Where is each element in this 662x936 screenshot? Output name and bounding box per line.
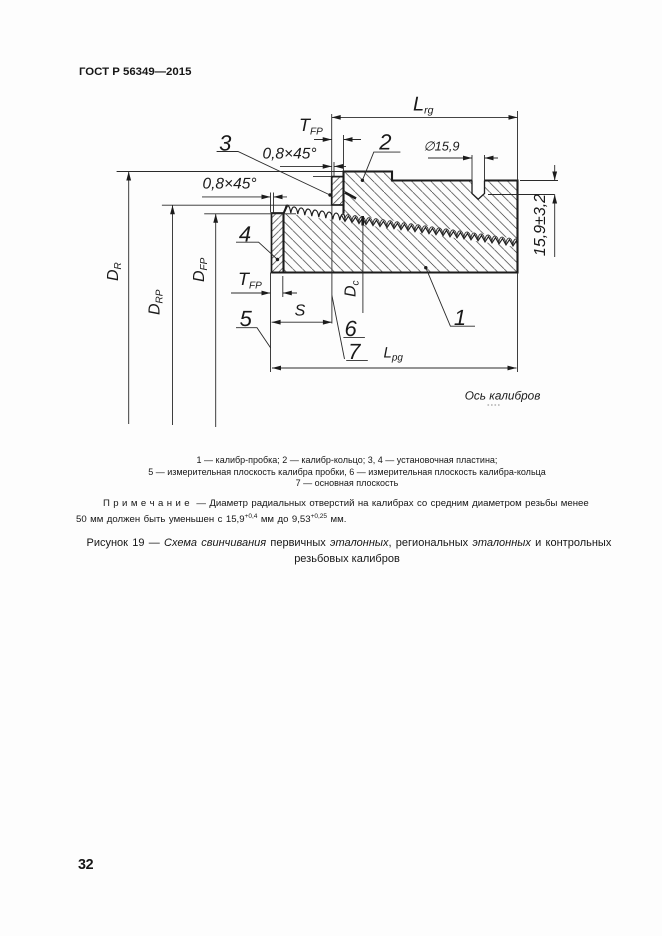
svg-text:Lrg: Lrg	[413, 94, 434, 117]
svg-text:Lpg: Lpg	[384, 345, 404, 364]
svg-text:0,8×45°: 0,8×45°	[263, 146, 317, 163]
svg-text:3: 3	[219, 131, 232, 156]
svg-text:S: S	[295, 303, 306, 320]
svg-text:DR: DR	[105, 262, 124, 281]
svg-text:2: 2	[378, 130, 391, 155]
svg-text:∅15,9: ∅15,9	[424, 139, 460, 154]
svg-text:0,8×45°: 0,8×45°	[203, 176, 257, 193]
svg-text:Ось калибров: Ось калибров	[465, 389, 541, 403]
svg-text:4: 4	[239, 222, 251, 247]
svg-text:DFP: DFP	[191, 257, 210, 282]
svg-text:TFP: TFP	[238, 269, 262, 292]
svg-text:DRP: DRP	[147, 289, 166, 315]
svg-text:TFP: TFP	[299, 115, 323, 138]
svg-text:1: 1	[454, 305, 466, 330]
svg-text:Dc: Dc	[343, 280, 362, 297]
svg-text:15,9±3,2: 15,9±3,2	[532, 194, 549, 256]
svg-text:7: 7	[348, 339, 361, 364]
svg-text:6: 6	[344, 316, 357, 341]
svg-text:5: 5	[240, 306, 253, 331]
